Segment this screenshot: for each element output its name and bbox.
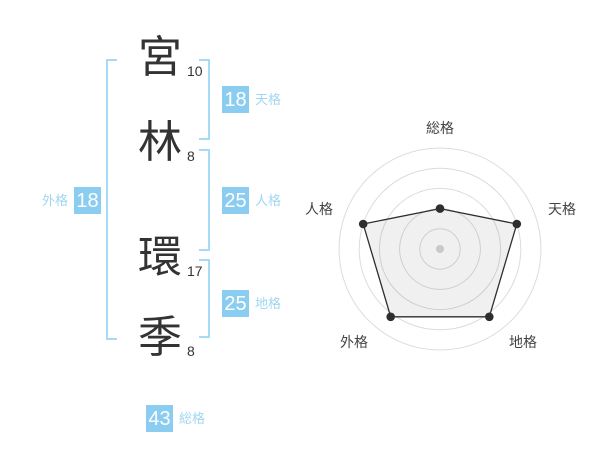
chikaku-badge-group: 25 地格	[222, 290, 281, 317]
name-character-row: 宮 10	[138, 36, 203, 80]
soukaku-label: 総格	[179, 412, 205, 425]
chikaku-label: 地格	[255, 297, 281, 310]
radar-chart: 総格天格地格外格人格	[300, 0, 600, 470]
name-analysis-screen: 宮 10 林 8 環 17 季 8 18 天格 25 人格 25 地格 外格	[0, 0, 600, 470]
gaikaku-bracket	[106, 59, 117, 340]
radar-data-point	[436, 204, 445, 213]
radar-axis-label: 地格	[509, 334, 537, 350]
stroke-count: 8	[187, 149, 195, 163]
jinkaku-value-badge: 25	[222, 187, 249, 214]
radar-data-point	[513, 220, 522, 229]
gaikaku-value-badge: 18	[74, 187, 101, 214]
name-character-row: 環 17	[138, 236, 203, 280]
jinkaku-label: 人格	[255, 194, 281, 207]
name-character-row: 季 8	[138, 316, 195, 360]
soukaku-value-badge: 43	[146, 405, 173, 432]
stroke-count: 10	[187, 64, 203, 78]
radar-data-point	[386, 313, 395, 322]
soukaku-badge-group: 43 総格	[146, 405, 205, 432]
radar-axis-label: 人格	[305, 201, 333, 217]
name-character-row: 林 8	[138, 121, 195, 165]
radar-chart-panel: 総格天格地格外格人格	[300, 0, 600, 470]
stroke-count: 17	[187, 264, 203, 278]
radar-axis-label: 天格	[548, 201, 576, 217]
tenkaku-badge-group: 18 天格	[222, 86, 281, 113]
chikaku-value-badge: 25	[222, 290, 249, 317]
radar-data-polygon	[363, 209, 517, 317]
radar-axis-label: 総格	[426, 120, 454, 136]
gaikaku-label: 外格	[42, 194, 68, 207]
kanji-character: 季	[138, 316, 182, 360]
jinkaku-badge-group: 25 人格	[222, 187, 281, 214]
kanji-character: 宮	[138, 36, 182, 80]
stroke-count: 8	[187, 344, 195, 358]
kanji-character: 林	[138, 121, 182, 165]
radar-data-point	[485, 313, 494, 322]
radar-axis-label: 外格	[340, 334, 368, 350]
radar-center-dot	[436, 245, 444, 253]
radar-data-point	[359, 220, 368, 229]
gaikaku-badge-group: 外格 18	[42, 187, 101, 214]
name-stroke-diagram: 宮 10 林 8 環 17 季 8 18 天格 25 人格 25 地格 外格	[0, 0, 300, 470]
kanji-character: 環	[138, 236, 182, 280]
tenkaku-value-badge: 18	[222, 86, 249, 113]
tenkaku-label: 天格	[255, 93, 281, 106]
